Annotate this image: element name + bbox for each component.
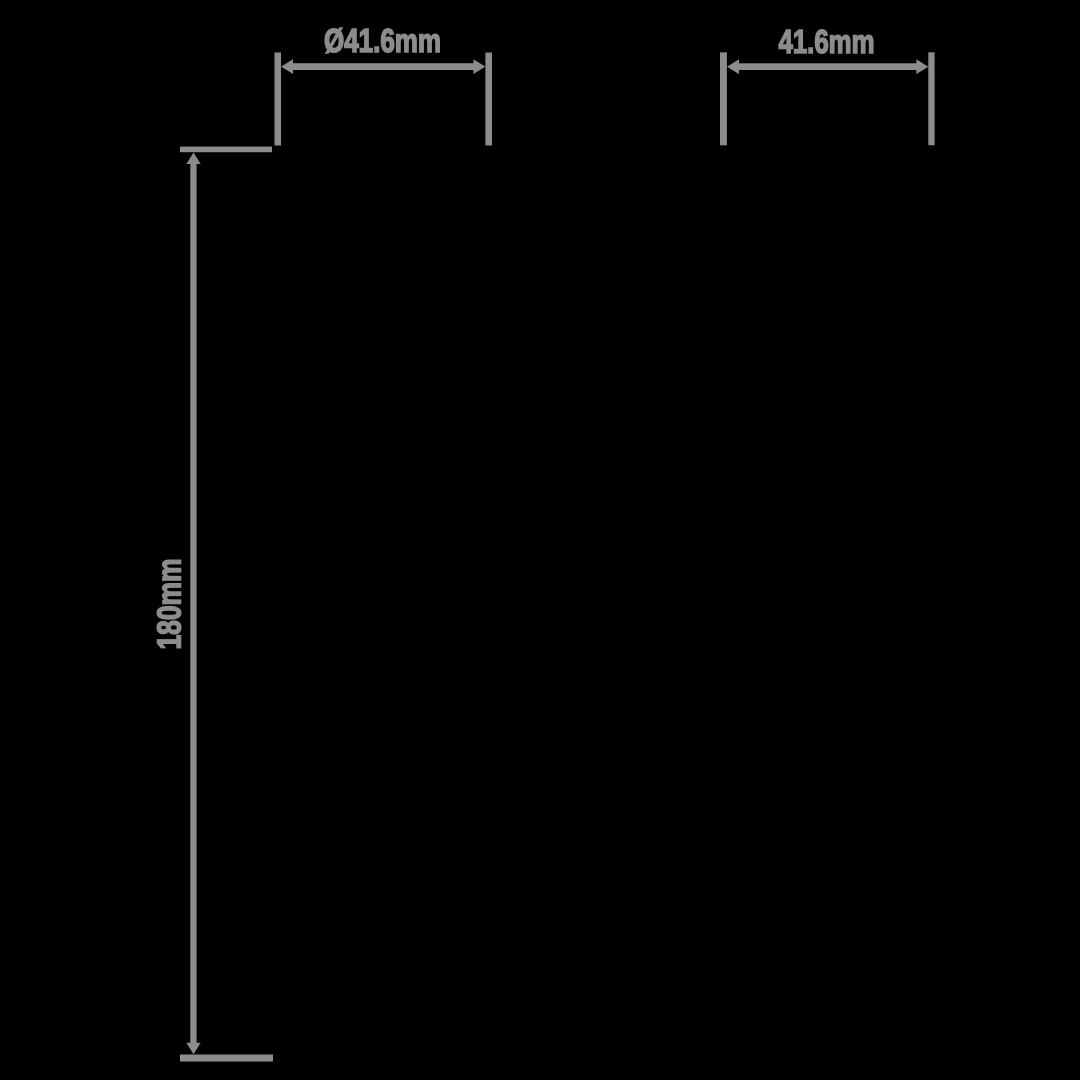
- svg-text:41.6mm: 41.6mm: [779, 23, 875, 60]
- svg-text:180mm: 180mm: [151, 559, 188, 650]
- svg-text:Ø41.6mm: Ø41.6mm: [324, 22, 441, 59]
